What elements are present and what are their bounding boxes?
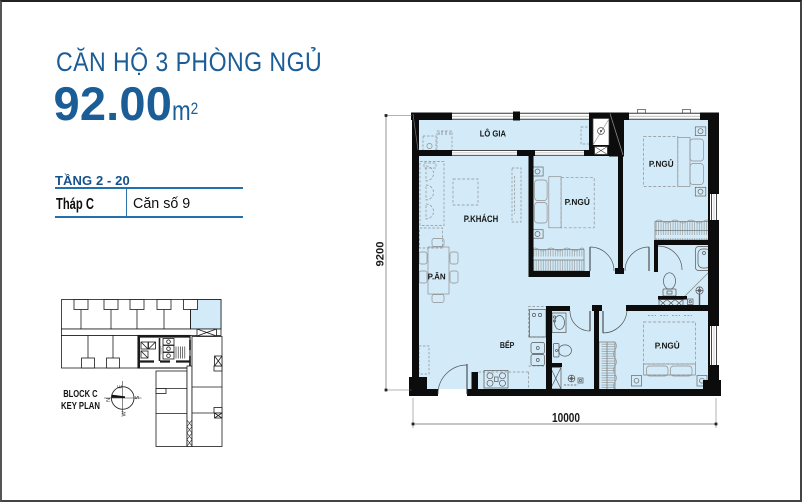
svg-text:9200: 9200 <box>375 242 387 267</box>
svg-text:W: W <box>121 410 127 416</box>
svg-text:P.ĂN: P.ĂN <box>428 271 446 281</box>
svg-text:BLOCK C: BLOCK C <box>63 389 98 400</box>
svg-text:LÔ GIA: LÔ GIA <box>480 127 507 138</box>
svg-text:BẾP: BẾP <box>500 340 515 350</box>
svg-text:N: N <box>106 398 112 402</box>
svg-text:S: S <box>135 395 141 399</box>
svg-text:10000: 10000 <box>552 410 580 425</box>
svg-text:P.NGỦ: P.NGỦ <box>655 340 680 351</box>
svg-text:KEY PLAN: KEY PLAN <box>61 401 100 412</box>
svg-text:P.NGỦ: P.NGỦ <box>565 196 590 207</box>
svg-text:E: E <box>118 385 124 389</box>
svg-text:P.KHÁCH: P.KHÁCH <box>464 213 499 224</box>
svg-text:P.NGỦ: P.NGỦ <box>649 158 674 169</box>
svg-text:LOBBY: LOBBY <box>159 345 163 354</box>
